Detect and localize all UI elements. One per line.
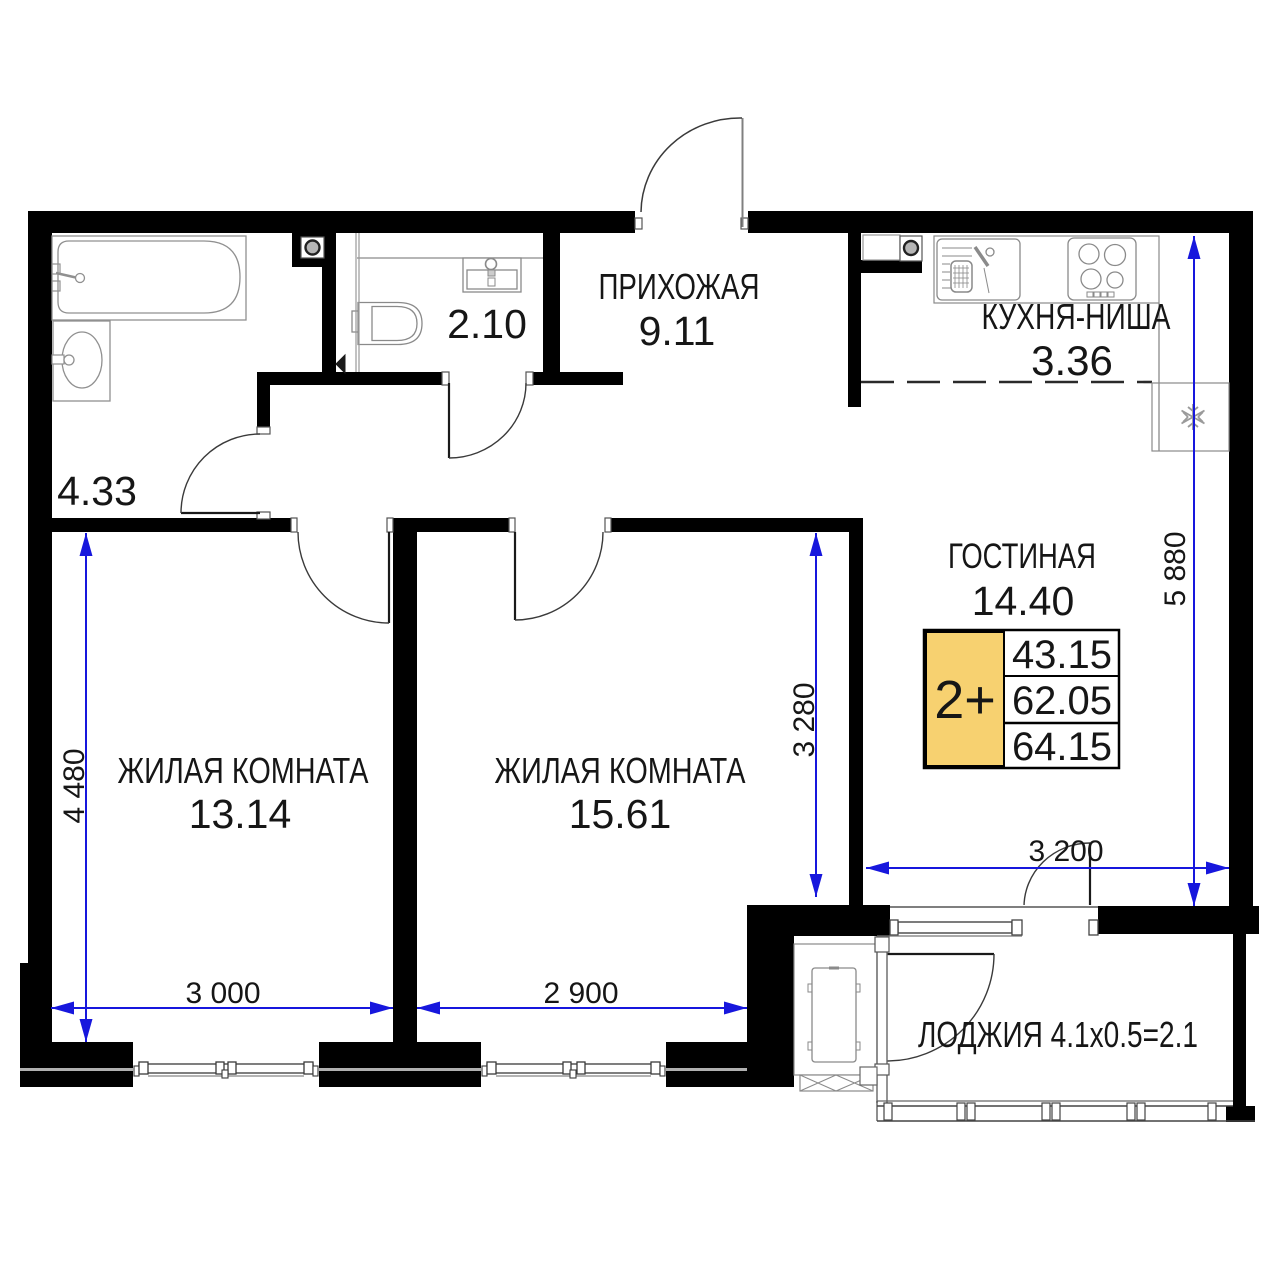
svg-text:ПРИХОЖАЯ: ПРИХОЖАЯ bbox=[599, 266, 760, 307]
svg-text:3 200: 3 200 bbox=[1028, 835, 1103, 868]
svg-text:5 880: 5 880 bbox=[1159, 531, 1192, 606]
svg-text:ЖИЛАЯ КОМНАТА: ЖИЛАЯ КОМНАТА bbox=[495, 750, 746, 791]
svg-text:43.15: 43.15 bbox=[1012, 633, 1112, 677]
svg-text:3 280: 3 280 bbox=[788, 682, 821, 757]
svg-text:9.11: 9.11 bbox=[639, 308, 716, 354]
svg-text:4.33: 4.33 bbox=[57, 468, 137, 514]
svg-text:15.61: 15.61 bbox=[569, 791, 672, 837]
svg-text:13.14: 13.14 bbox=[189, 791, 292, 837]
svg-text:КУХНЯ-НИША: КУХНЯ-НИША bbox=[982, 296, 1171, 337]
svg-text:2.10: 2.10 bbox=[447, 301, 527, 347]
svg-text:ГОСТИНАЯ: ГОСТИНАЯ bbox=[948, 537, 1096, 576]
svg-text:3 000: 3 000 bbox=[185, 977, 260, 1010]
svg-text:3.36: 3.36 bbox=[1031, 337, 1113, 384]
svg-text:62.05: 62.05 bbox=[1012, 679, 1112, 723]
svg-text:2+: 2+ bbox=[934, 670, 996, 730]
svg-text:4 480: 4 480 bbox=[58, 748, 91, 823]
svg-text:2 900: 2 900 bbox=[543, 977, 618, 1010]
svg-text:ЛОДЖИЯ 4.1х0.5=2.1: ЛОДЖИЯ 4.1х0.5=2.1 bbox=[918, 1014, 1198, 1055]
svg-text:64.15: 64.15 bbox=[1012, 725, 1112, 769]
svg-text:ЖИЛАЯ КОМНАТА: ЖИЛАЯ КОМНАТА bbox=[118, 750, 369, 791]
svg-text:14.40: 14.40 bbox=[972, 578, 1075, 624]
